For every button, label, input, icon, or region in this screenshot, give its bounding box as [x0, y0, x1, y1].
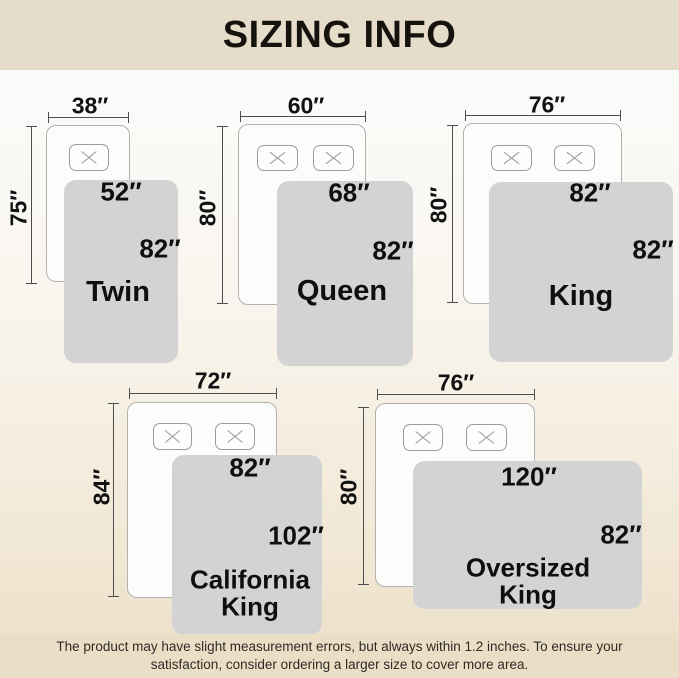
length-dimension-label: 80″	[195, 190, 222, 227]
dimension-tick	[128, 112, 129, 123]
sizing-info-infographic: SIZING INFO 38″75″52″82″Twin60″80″68″82″…	[0, 0, 679, 678]
pillow	[153, 423, 192, 450]
dimension-tick	[26, 126, 37, 127]
dimension-tick	[377, 389, 378, 400]
width-dimension-label: 76″	[529, 92, 566, 119]
length-dimension-line	[363, 407, 364, 585]
width-dimension-label: 38″	[72, 93, 109, 120]
dimension-tick	[240, 111, 241, 122]
width-dimension-label: 60″	[288, 93, 325, 120]
pillow-x-icon	[258, 146, 297, 170]
dimension-tick	[217, 126, 228, 127]
blanket-length-label: 102″	[268, 521, 324, 552]
blanket-length-label: 82″	[600, 520, 641, 551]
length-dimension-label: 80″	[336, 469, 363, 506]
dimension-tick	[129, 388, 130, 399]
blanket-width-label: 120″	[501, 462, 557, 493]
pillow-x-icon	[492, 146, 531, 170]
pillow-x-icon	[555, 146, 594, 170]
page-title: SIZING INFO	[223, 14, 457, 57]
pillow	[554, 145, 595, 171]
blanket-length-label: 82″	[139, 234, 180, 265]
pillow	[215, 423, 255, 450]
blanket-width-label: 82″	[569, 178, 610, 209]
measurement-disclaimer: The product may have slight measurement …	[29, 638, 651, 674]
dimension-tick	[534, 389, 535, 400]
dimension-tick	[447, 125, 458, 126]
pillow-x-icon	[404, 425, 442, 450]
blanket-overlay	[277, 181, 413, 366]
width-dimension-label: 76″	[438, 370, 475, 397]
pillow-x-icon	[467, 425, 506, 450]
width-dimension-label: 72″	[195, 368, 232, 395]
dimension-tick	[108, 596, 119, 597]
dimension-tick	[26, 283, 37, 284]
pillow	[313, 145, 354, 171]
pillow-x-icon	[314, 146, 353, 170]
bed-name-label: King	[549, 281, 613, 311]
length-dimension-label: 84″	[89, 469, 116, 506]
blanket-width-label: 82″	[229, 453, 270, 484]
dimension-tick	[48, 112, 49, 123]
length-dimension-label: 75″	[6, 190, 33, 227]
dimension-tick	[108, 403, 119, 404]
pillow-x-icon	[154, 424, 191, 449]
pillow	[257, 145, 298, 171]
dimension-tick	[217, 303, 228, 304]
blanket-width-label: 52″	[100, 177, 141, 208]
pillow	[403, 424, 443, 451]
blanket-width-label: 68″	[328, 178, 369, 209]
dimension-tick	[276, 388, 277, 399]
pillow	[69, 144, 109, 171]
dimension-tick	[365, 111, 366, 122]
blanket-length-label: 82″	[372, 236, 413, 267]
dimension-tick	[620, 110, 621, 121]
dimension-tick	[358, 584, 369, 585]
dimension-tick	[465, 110, 466, 121]
pillow	[466, 424, 507, 451]
pillow-x-icon	[70, 145, 108, 170]
pillow-x-icon	[216, 424, 254, 449]
bed-name-label: Queen	[297, 276, 387, 306]
blanket-overlay	[489, 182, 673, 362]
blanket-length-label: 82″	[632, 235, 673, 266]
bed-name-label: California King	[175, 567, 325, 622]
header-banner: SIZING INFO	[0, 0, 679, 70]
bed-name-label: Twin	[86, 277, 150, 307]
bed-name-label: Oversized King	[448, 555, 608, 610]
length-dimension-label: 80″	[426, 187, 453, 224]
dimension-tick	[358, 407, 369, 408]
footer-banner: The product may have slight measurement …	[0, 634, 679, 678]
pillow	[491, 145, 532, 171]
dimension-tick	[447, 302, 458, 303]
length-dimension-line	[222, 126, 223, 304]
